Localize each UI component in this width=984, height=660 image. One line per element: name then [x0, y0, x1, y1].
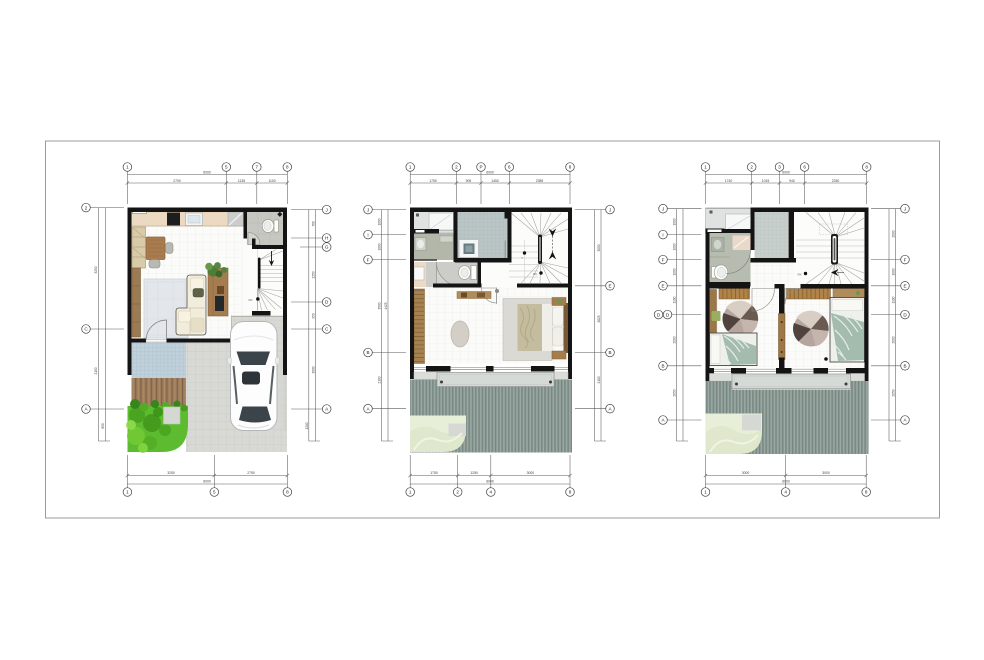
svg-text:1100: 1100 — [673, 296, 677, 303]
svg-text:1450: 1450 — [491, 179, 499, 183]
svg-text:1: 1 — [409, 165, 412, 170]
svg-text:1000: 1000 — [378, 243, 382, 250]
svg-text:1000: 1000 — [378, 218, 382, 225]
svg-text:G: G — [325, 245, 329, 250]
svg-text:2100: 2100 — [597, 376, 601, 383]
svg-text:6000: 6000 — [203, 480, 211, 484]
svg-text:2: 2 — [750, 165, 753, 170]
svg-text:1750: 1750 — [430, 471, 438, 475]
svg-text:3250: 3250 — [94, 266, 98, 273]
svg-text:6: 6 — [803, 165, 806, 170]
svg-text:6000: 6000 — [203, 171, 211, 175]
svg-text:3000: 3000 — [312, 366, 316, 373]
svg-text:3000: 3000 — [822, 471, 830, 475]
svg-text:2625: 2625 — [597, 315, 601, 322]
svg-text:3050: 3050 — [597, 244, 601, 251]
svg-text:2150: 2150 — [94, 367, 98, 374]
svg-text:6: 6 — [508, 165, 511, 170]
svg-text:E: E — [661, 284, 664, 289]
svg-text:3250: 3250 — [167, 471, 175, 475]
svg-text:1750: 1750 — [429, 179, 437, 183]
svg-text:J: J — [662, 206, 664, 211]
svg-text:RK: RK — [249, 298, 253, 302]
svg-text:1000: 1000 — [673, 268, 677, 275]
svg-text:RK: RK — [533, 272, 537, 276]
svg-text:8: 8 — [865, 165, 868, 170]
svg-text:E: E — [608, 284, 611, 289]
svg-text:6000: 6000 — [486, 171, 494, 175]
svg-text:5: 5 — [225, 165, 228, 170]
svg-text:1135: 1135 — [238, 179, 245, 183]
svg-text:6000: 6000 — [782, 480, 790, 484]
svg-text:H: H — [325, 236, 328, 241]
svg-text:8: 8 — [286, 490, 289, 495]
svg-text:RK: RK — [798, 272, 802, 276]
svg-text:1: 1 — [126, 490, 129, 495]
svg-text:940: 940 — [789, 179, 795, 183]
svg-text:850: 850 — [101, 423, 105, 429]
svg-text:3: 3 — [778, 165, 781, 170]
svg-text:2250: 2250 — [312, 271, 316, 278]
svg-text:760: 760 — [312, 221, 316, 227]
svg-text:905: 905 — [466, 179, 472, 183]
svg-text:J: J — [904, 206, 906, 211]
svg-text:8: 8 — [286, 165, 289, 170]
svg-text:2700: 2700 — [173, 179, 181, 183]
svg-text:1000: 1000 — [673, 243, 677, 250]
svg-text:1015: 1015 — [762, 179, 770, 183]
svg-text:2: 2 — [85, 205, 88, 210]
svg-text:B: B — [366, 350, 369, 355]
svg-text:1000: 1000 — [892, 268, 896, 275]
svg-text:3000: 3000 — [742, 471, 750, 475]
svg-text:950: 950 — [312, 313, 316, 319]
svg-text:2385: 2385 — [536, 179, 544, 183]
svg-text:1200: 1200 — [305, 422, 309, 429]
svg-text:F: F — [367, 257, 370, 262]
svg-text:8: 8 — [865, 490, 868, 495]
svg-text:1: 1 — [704, 490, 707, 495]
svg-text:4425: 4425 — [384, 302, 388, 309]
svg-text:B: B — [608, 350, 611, 355]
svg-text:4: 4 — [784, 490, 787, 495]
svg-text:2: 2 — [455, 165, 458, 170]
svg-text:I: I — [367, 232, 368, 237]
svg-text:J: J — [326, 207, 328, 212]
svg-text:1000: 1000 — [673, 218, 677, 225]
svg-text:J: J — [609, 207, 611, 212]
svg-text:2000: 2000 — [673, 336, 677, 343]
svg-text:B: B — [661, 364, 664, 369]
svg-text:E: E — [903, 284, 906, 289]
svg-text:4: 4 — [490, 490, 493, 495]
svg-text:3000: 3000 — [527, 471, 535, 475]
svg-text:1100: 1100 — [268, 179, 275, 183]
svg-text:7: 7 — [256, 165, 259, 170]
svg-text:6000: 6000 — [486, 480, 494, 484]
svg-text:I: I — [662, 232, 663, 237]
svg-text:2000: 2000 — [892, 336, 896, 343]
svg-text:F: F — [662, 257, 665, 262]
svg-text:3500: 3500 — [378, 302, 382, 309]
svg-text:1250: 1250 — [470, 471, 478, 475]
svg-text:1740: 1740 — [725, 179, 733, 183]
svg-text:2000: 2000 — [892, 230, 896, 237]
svg-text:1: 1 — [704, 165, 707, 170]
svg-text:1100: 1100 — [892, 296, 896, 303]
svg-text:2750: 2750 — [247, 471, 255, 475]
svg-text:2: 2 — [456, 490, 459, 495]
svg-text:2050: 2050 — [673, 389, 677, 396]
svg-text:6000: 6000 — [782, 171, 790, 175]
svg-text:P: P — [479, 165, 482, 170]
svg-text:5: 5 — [213, 490, 216, 495]
svg-text:8: 8 — [569, 165, 572, 170]
svg-text:2330: 2330 — [832, 179, 840, 183]
svg-text:F: F — [904, 257, 907, 262]
svg-text:B: B — [903, 364, 906, 369]
svg-text:J: J — [367, 207, 369, 212]
svg-text:8: 8 — [569, 490, 572, 495]
svg-text:1: 1 — [409, 490, 412, 495]
svg-text:2050: 2050 — [892, 389, 896, 396]
svg-text:2100: 2100 — [378, 376, 382, 383]
svg-text:1: 1 — [126, 165, 129, 170]
